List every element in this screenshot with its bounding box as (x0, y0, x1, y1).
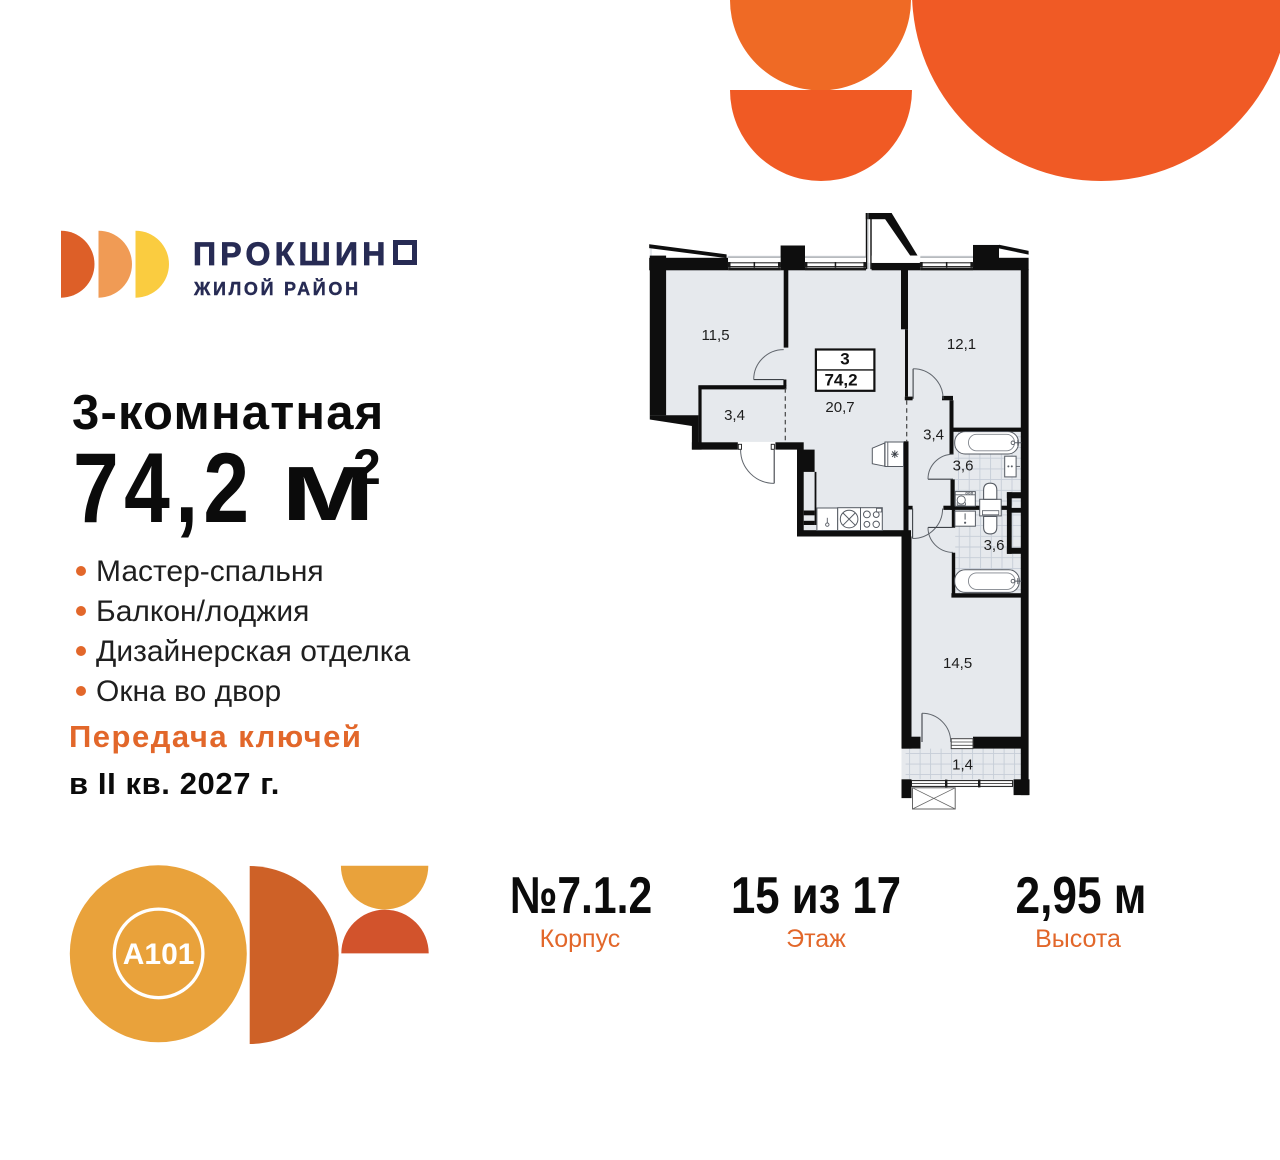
svg-text:3,6: 3,6 (953, 458, 974, 475)
svg-text:3,4: 3,4 (923, 426, 944, 443)
svg-text:3,6: 3,6 (984, 537, 1005, 554)
svg-text:11,5: 11,5 (701, 327, 729, 344)
svg-text:3: 3 (840, 350, 849, 369)
svg-text:74,2: 74,2 (824, 371, 857, 390)
svg-text:20,7: 20,7 (825, 399, 854, 416)
svg-text:3,4: 3,4 (724, 407, 745, 424)
svg-text:1,4: 1,4 (952, 756, 973, 773)
svg-text:14,5: 14,5 (943, 655, 972, 672)
svg-text:12,1: 12,1 (947, 336, 976, 353)
